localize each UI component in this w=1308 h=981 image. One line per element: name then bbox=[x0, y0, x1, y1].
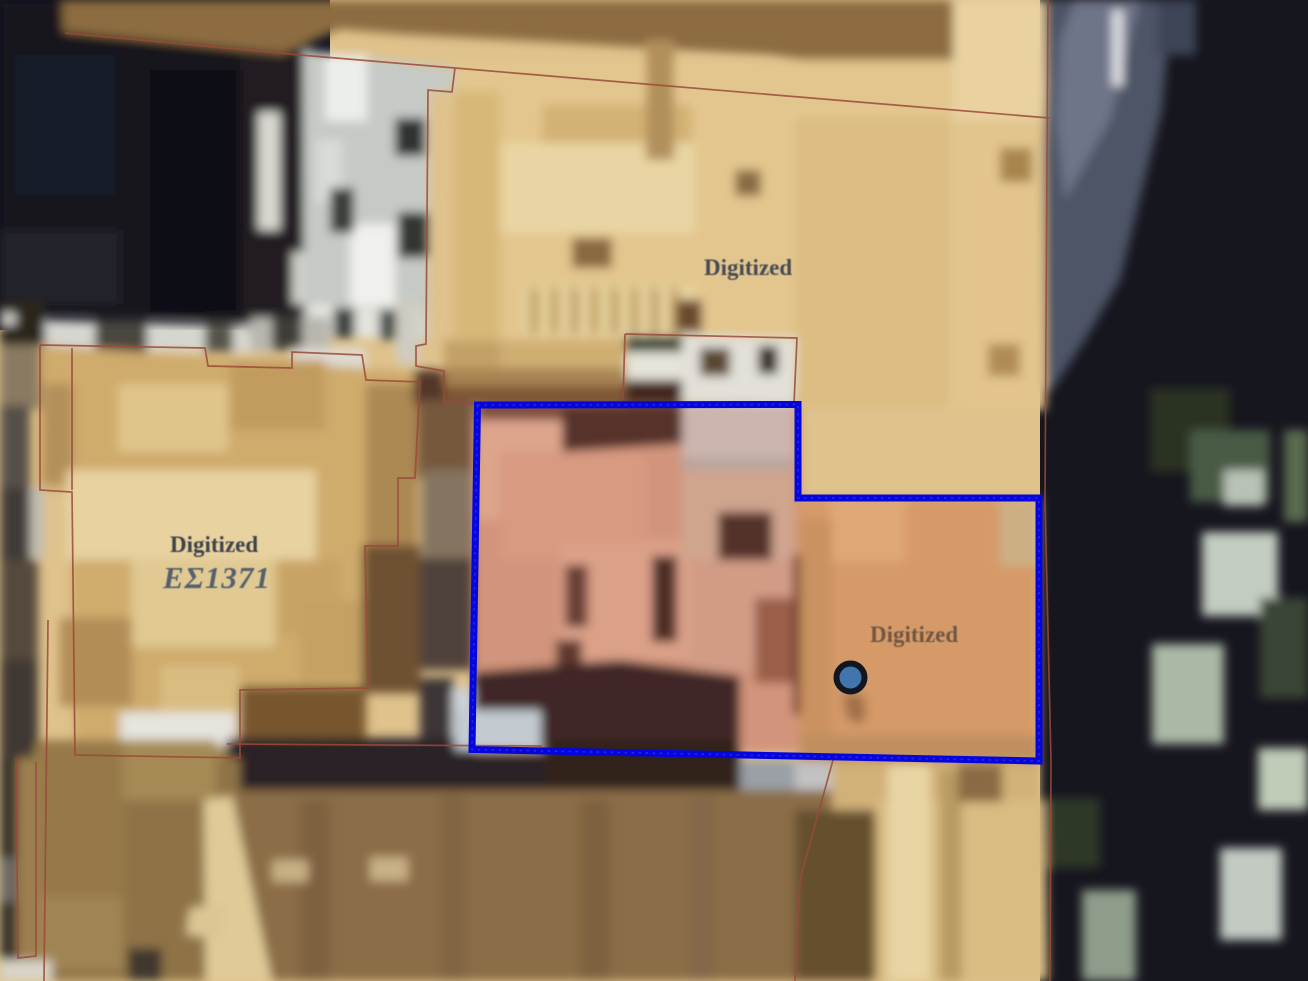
svg-text:Digitized: Digitized bbox=[170, 532, 258, 557]
svg-text:Digitized: Digitized bbox=[704, 255, 792, 280]
svg-text:Digitized: Digitized bbox=[870, 622, 958, 647]
svg-text:ΕΣ1371: ΕΣ1371 bbox=[162, 560, 271, 595]
